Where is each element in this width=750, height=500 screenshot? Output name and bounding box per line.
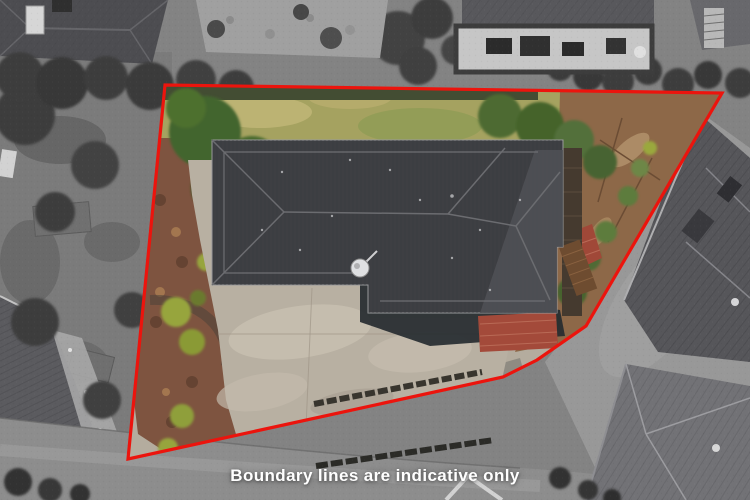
boundary-disclaimer-caption: Boundary lines are indicative only	[0, 466, 750, 486]
aerial-property-photo: Boundary lines are indicative only	[0, 0, 750, 500]
aerial-photo-canvas	[0, 0, 750, 500]
